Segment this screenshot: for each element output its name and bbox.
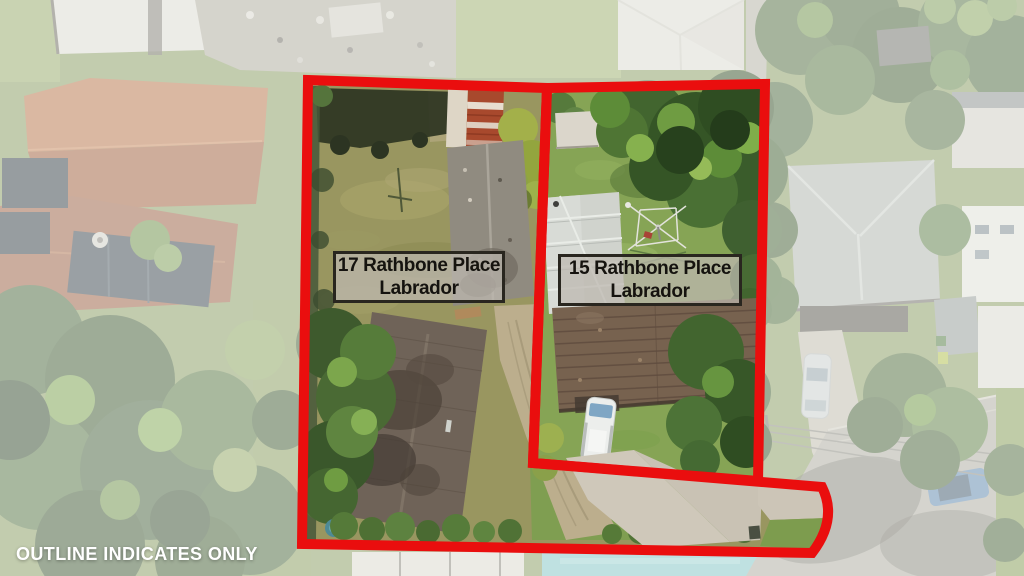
property-label-lot-15-line1: 15 Rathbone Place	[561, 257, 739, 280]
property-label-lot-17-line1: 17 Rathbone Place	[336, 254, 502, 277]
van-windshield	[589, 403, 613, 419]
outline-disclaimer: OUTLINE INDICATES ONLY	[16, 544, 258, 565]
property-label-lot-15-line2: Labrador	[561, 280, 739, 303]
property-label-lot-17-line2: Labrador	[336, 277, 502, 300]
property-label-lot-17: 17 Rathbone Place Labrador	[333, 251, 505, 303]
bin	[748, 525, 760, 539]
shed-red-white	[446, 87, 504, 149]
aerial-photo	[0, 0, 1024, 576]
aerial-photo-stage: 17 Rathbone Place Labrador 15 Rathbone P…	[0, 0, 1024, 576]
property-label-lot-15: 15 Rathbone Place Labrador	[558, 254, 742, 306]
